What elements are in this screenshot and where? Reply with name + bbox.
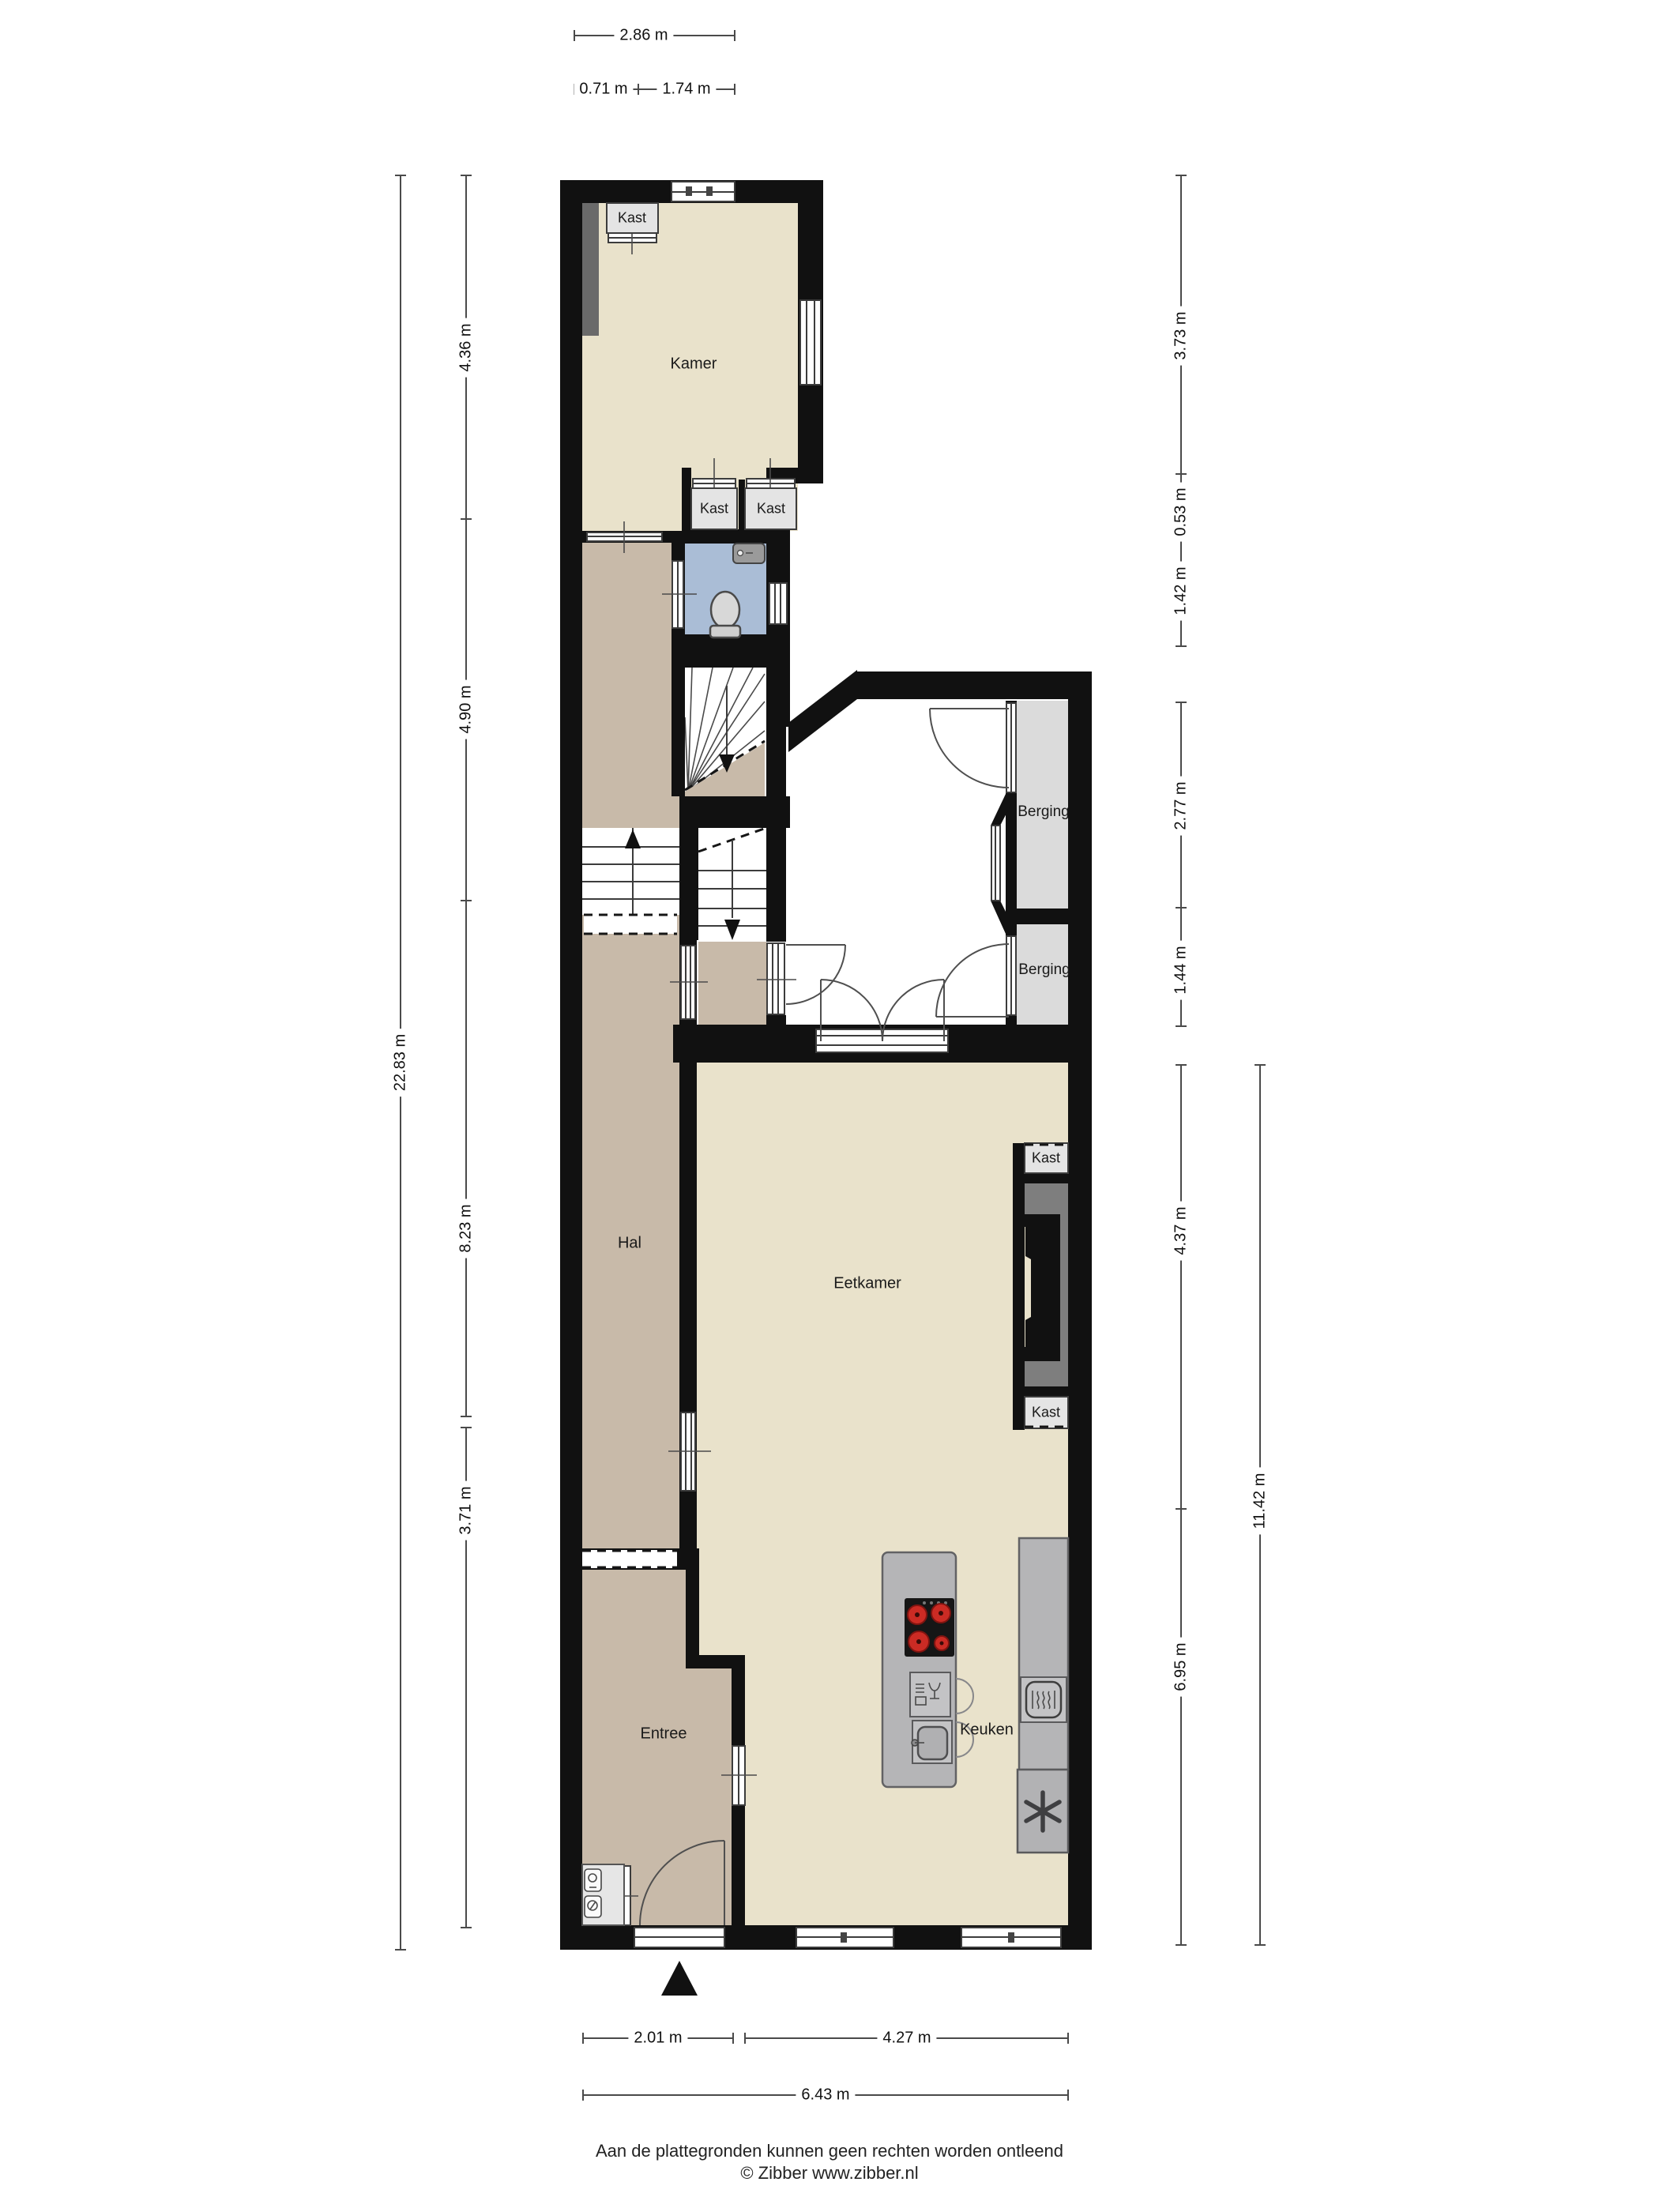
room-label-kamer: Kamer — [671, 355, 717, 374]
closet-label-row-right: Kast — [757, 501, 785, 517]
closet-label-chimney-lower: Kast — [1032, 1405, 1060, 1421]
room-label-berging-lower: Berging — [1018, 961, 1070, 979]
room-label-berging-upper: Berging — [1018, 803, 1070, 821]
room-label-keuken: Keuken — [960, 1721, 1014, 1740]
room-fills — [582, 203, 1070, 1925]
dim-bottom-seg2: 4.27 m — [877, 2030, 936, 2048]
closet-label-kamer: Kast — [618, 210, 646, 227]
dim-right-seg3: 1.42 m — [1172, 561, 1191, 620]
room-label-hal: Hal — [618, 1235, 641, 1253]
oven-icon — [1021, 1677, 1066, 1722]
closet-label-chimney-upper: Kast — [1032, 1150, 1060, 1167]
dim-right-seg7: 6.95 m — [1172, 1637, 1191, 1696]
dim-right-seg5: 1.44 m — [1172, 940, 1191, 999]
footer-disclaimer: Aan de plattegronden kunnen geen rechten… — [596, 2141, 1063, 2161]
dim-left-seg3: 8.23 m — [457, 1198, 476, 1258]
footer-credit: © Zibber www.zibber.nl — [740, 2163, 918, 2184]
floorplan-drawing — [0, 0, 1659, 2212]
dim-right-seg4: 2.77 m — [1172, 776, 1191, 835]
closet-label-row-left: Kast — [700, 501, 728, 517]
freezer-icon — [1018, 1770, 1068, 1853]
dim-top-seg1: 0.71 m — [574, 81, 633, 99]
dishwasher-icon — [910, 1672, 950, 1717]
cooktop-icon — [905, 1598, 954, 1657]
dim-left-seg4: 3.71 m — [457, 1480, 476, 1540]
floorplan: Kamer Hal Eetkamer Entree Keuken Berging… — [0, 0, 1659, 2212]
room-label-eetkamer: Eetkamer — [833, 1275, 901, 1293]
dim-bottom-total: 6.43 m — [796, 2086, 855, 2105]
dim-left-seg2: 4.90 m — [457, 679, 476, 739]
dim-bottom-seg1: 2.01 m — [628, 2030, 687, 2048]
room-label-entree: Entree — [641, 1725, 687, 1744]
dim-left-total: 22.83 m — [392, 1029, 410, 1097]
dim-right-total: 11.42 m — [1251, 1468, 1270, 1535]
dim-left-seg1: 4.36 m — [457, 318, 476, 377]
dim-top-seg2: 1.74 m — [656, 81, 716, 99]
dim-right-seg1: 3.73 m — [1172, 306, 1191, 365]
sink-icon — [912, 1721, 952, 1763]
dim-right-seg6: 4.37 m — [1172, 1201, 1191, 1260]
entrance-arrow-icon — [661, 1961, 698, 1996]
dim-top-total: 2.86 m — [614, 27, 673, 45]
dim-right-seg2: 0.53 m — [1172, 482, 1191, 541]
